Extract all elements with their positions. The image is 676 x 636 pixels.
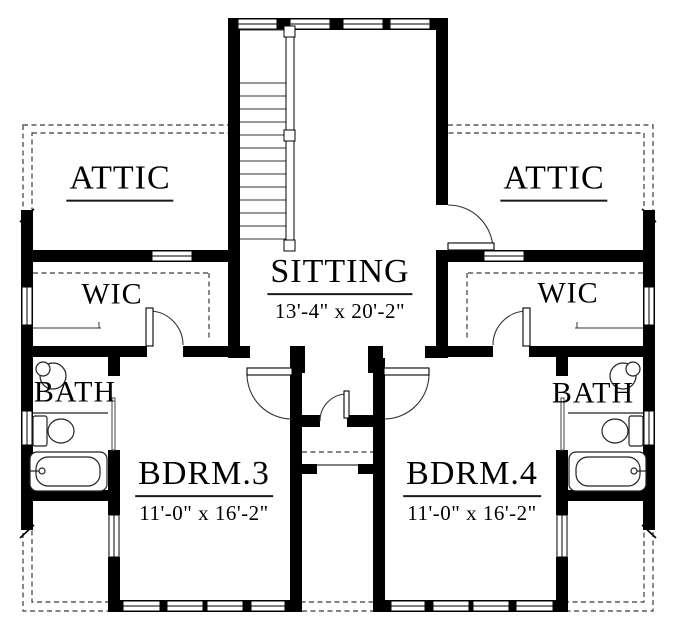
bdrm3-door (247, 368, 292, 419)
wic-left-rod (33, 322, 101, 328)
room-name: BATH (34, 376, 116, 408)
toilet-bowl-right (602, 419, 628, 443)
toilet-tank-right (629, 416, 643, 446)
room-name: WIC (537, 277, 598, 309)
floor-plan: ATTIC ATTIC SITTING 13'-4" x 20'-2" WIC … (0, 0, 676, 636)
room-name: BDRM.4 (403, 456, 541, 497)
room-name: BDRM.3 (135, 456, 273, 497)
room-name: ATTIC (500, 161, 607, 202)
railing-post-mid (284, 130, 295, 141)
hall-closet-door (320, 391, 349, 421)
room-dims: 11'-0" x 16'-2" (403, 502, 541, 524)
label-bdrm4: BDRM.4 11'-0" x 16'-2" (403, 456, 541, 524)
room-name: ATTIC (66, 161, 173, 202)
room-dims: 13'-4" x 20'-2" (267, 300, 412, 322)
wic-right-door (493, 308, 530, 346)
sink-right-pedestal (626, 362, 640, 376)
label-bath-right: BATH (552, 377, 634, 409)
room-dims: 11'-0" x 16'-2" (135, 502, 273, 524)
label-attic-left: ATTIC (66, 161, 173, 202)
tub-right-inner (576, 457, 640, 486)
label-wic-right: WIC (537, 277, 598, 309)
attic-right-door (448, 205, 494, 250)
label-wic-left: WIC (81, 278, 142, 310)
room-name: SITTING (267, 254, 412, 295)
tub-left-inner (36, 457, 100, 486)
wic-left-door (146, 308, 183, 346)
room-name: BATH (552, 377, 634, 409)
railing-post-top (284, 26, 295, 37)
label-bath-left: BATH (34, 376, 116, 408)
room-name: WIC (81, 278, 142, 310)
sink-left-pedestal (36, 362, 50, 376)
label-attic-right: ATTIC (500, 161, 607, 202)
label-sitting: SITTING 13'-4" x 20'-2" (267, 254, 412, 322)
toilet-tank-left (33, 416, 47, 446)
wic-right-rod (575, 322, 643, 328)
bdrm4-door (384, 368, 429, 419)
toilet-bowl-left (48, 419, 74, 443)
label-bdrm3: BDRM.3 11'-0" x 16'-2" (135, 456, 273, 524)
railing-post-bottom (284, 240, 295, 251)
